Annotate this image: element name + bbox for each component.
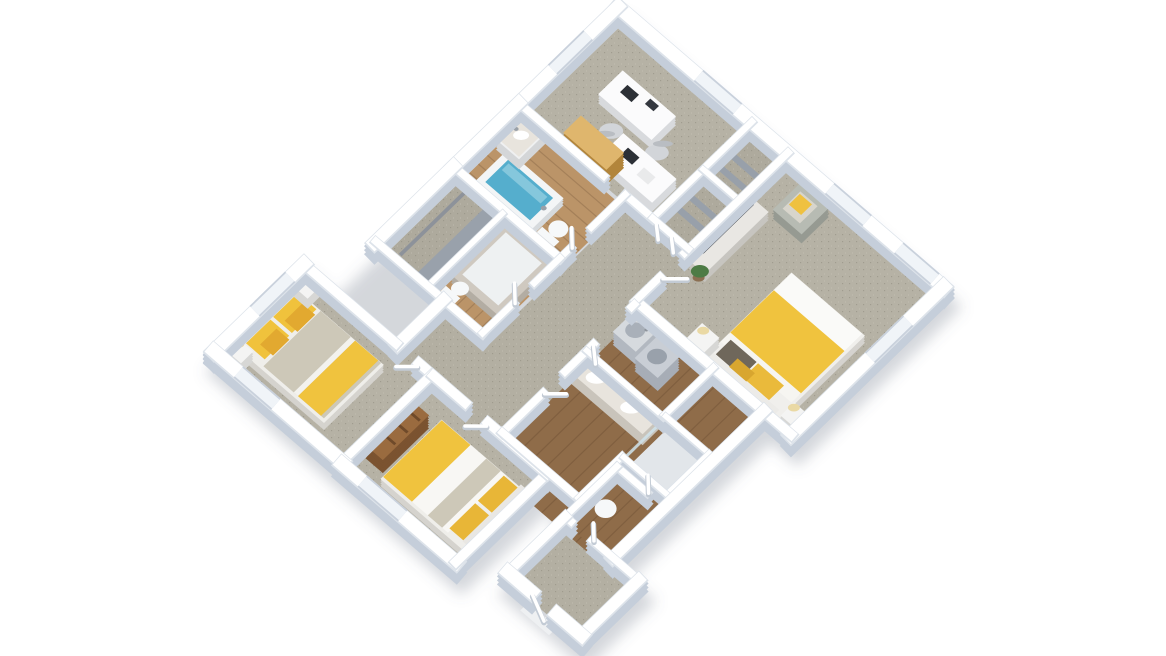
bathtub-top-part <box>541 206 547 211</box>
toilet-room-door <box>648 475 649 493</box>
toilet-middle-bathroom-part <box>451 282 469 296</box>
floor-plan-canvas <box>0 0 1166 656</box>
laundry-door <box>594 346 596 364</box>
vanity-top-bathroom-part <box>513 131 529 140</box>
office-chair-2-part <box>653 141 673 147</box>
master-nightstand-right-part <box>788 404 800 412</box>
floor-plan-3d-render <box>0 0 1166 656</box>
toilet-top-part <box>548 220 568 237</box>
bathroom-middle-door <box>515 283 516 303</box>
master-tv-console-part <box>691 265 709 277</box>
master-nightstand-left-part <box>697 327 709 335</box>
closet-b-door <box>671 238 673 253</box>
dryer-part <box>647 349 667 365</box>
bathroom-top-door <box>572 228 573 249</box>
wall-top <box>632 304 635 307</box>
closet-a-door <box>656 225 658 240</box>
entry-inner-door <box>593 523 594 541</box>
